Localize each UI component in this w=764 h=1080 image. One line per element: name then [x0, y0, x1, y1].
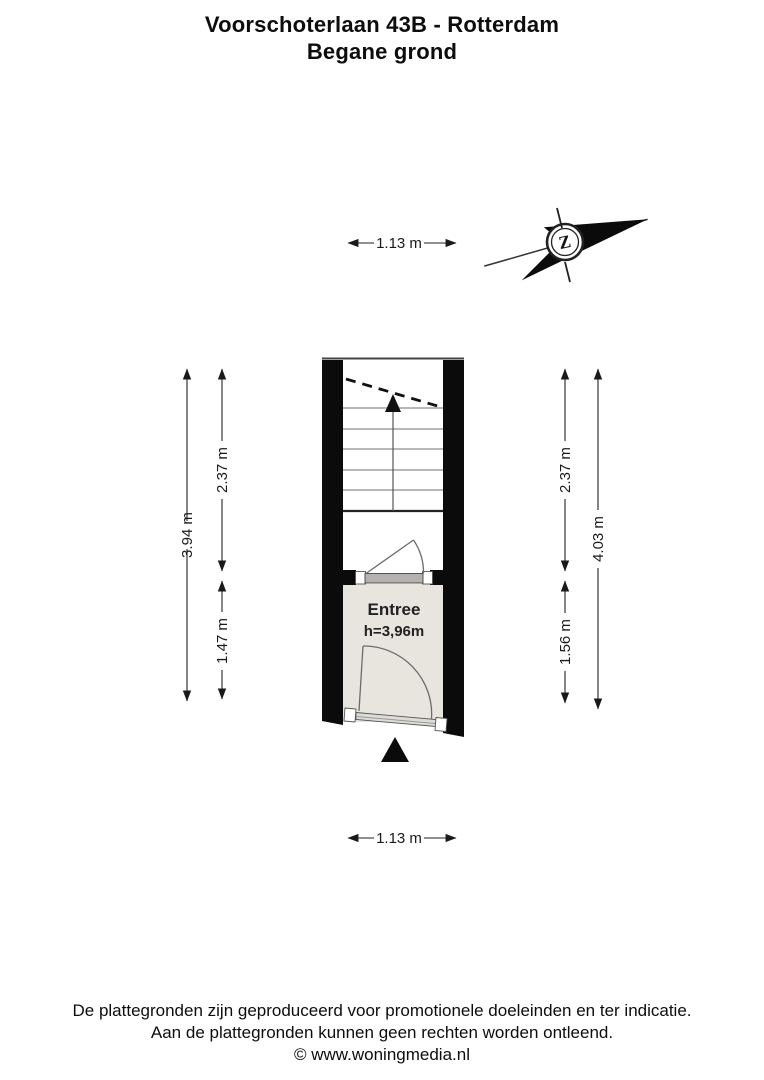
dim-left-lower-label: 1.47 m [214, 618, 231, 664]
dimension-bottom-width: 1.13 m [348, 830, 456, 847]
dim-right-upper-label: 2.37 m [557, 447, 574, 493]
dimension-right-upper: 2.37 m [557, 369, 574, 571]
front-door-jamb-right [435, 718, 447, 732]
dim-right-total-label: 4.03 m [590, 516, 607, 562]
dimension-left-total: 3.94 m [179, 369, 196, 701]
interior-wall-stub-left [343, 570, 356, 585]
dimension-right-total: 4.03 m [590, 369, 607, 709]
stair-direction-arrowhead [385, 394, 401, 412]
dimension-left-upper: 2.37 m [214, 369, 231, 571]
interior-door-sill [365, 574, 423, 584]
entree-room-label: Entree [368, 600, 421, 619]
dimension-top-width: 1.13 m [348, 235, 456, 252]
disclaimer-line-1: De plattegronden zijn geproduceerd voor … [0, 1000, 764, 1022]
interior-door-threshold [343, 570, 443, 585]
dimension-left-lower: 1.47 m [214, 581, 231, 699]
left-wall [322, 360, 343, 725]
dim-bottom-width-label: 1.13 m [376, 830, 422, 847]
staircase [343, 379, 443, 511]
compass-tick-bottom [565, 262, 570, 282]
front-door-jamb-left [344, 708, 356, 722]
dim-top-width-label: 1.13 m [376, 235, 422, 252]
interior-door-leaf [366, 540, 414, 574]
interior-door [366, 540, 424, 574]
disclaimer: De plattegronden zijn geproduceerd voor … [0, 1000, 764, 1066]
entree-ceiling-height-label: h=3,96m [364, 623, 424, 640]
entrance-marker-triangle [381, 737, 409, 762]
copyright-line: © www.woningmedia.nl [0, 1044, 764, 1066]
compass-rose: Z [478, 199, 654, 289]
right-wall [443, 360, 464, 737]
floorplan-page: Voorschoterlaan 43B - Rotterdam Begane g… [0, 0, 764, 1080]
dim-left-total-label: 3.94 m [179, 512, 196, 558]
dim-right-lower-label: 1.56 m [557, 619, 574, 665]
interior-door-swing-arc [414, 540, 424, 574]
dim-left-upper-label: 2.37 m [214, 447, 231, 493]
floorplan-drawing: Z 1.13 m 3.94 m 2.37 m 1.47 m 2. [0, 0, 764, 1080]
interior-door-jamb-left [356, 572, 366, 585]
plan-body: Entree h=3,96m [322, 359, 464, 763]
disclaimer-line-2: Aan de plattegronden kunnen geen rechten… [0, 1022, 764, 1044]
dimension-right-lower: 1.56 m [557, 581, 574, 703]
